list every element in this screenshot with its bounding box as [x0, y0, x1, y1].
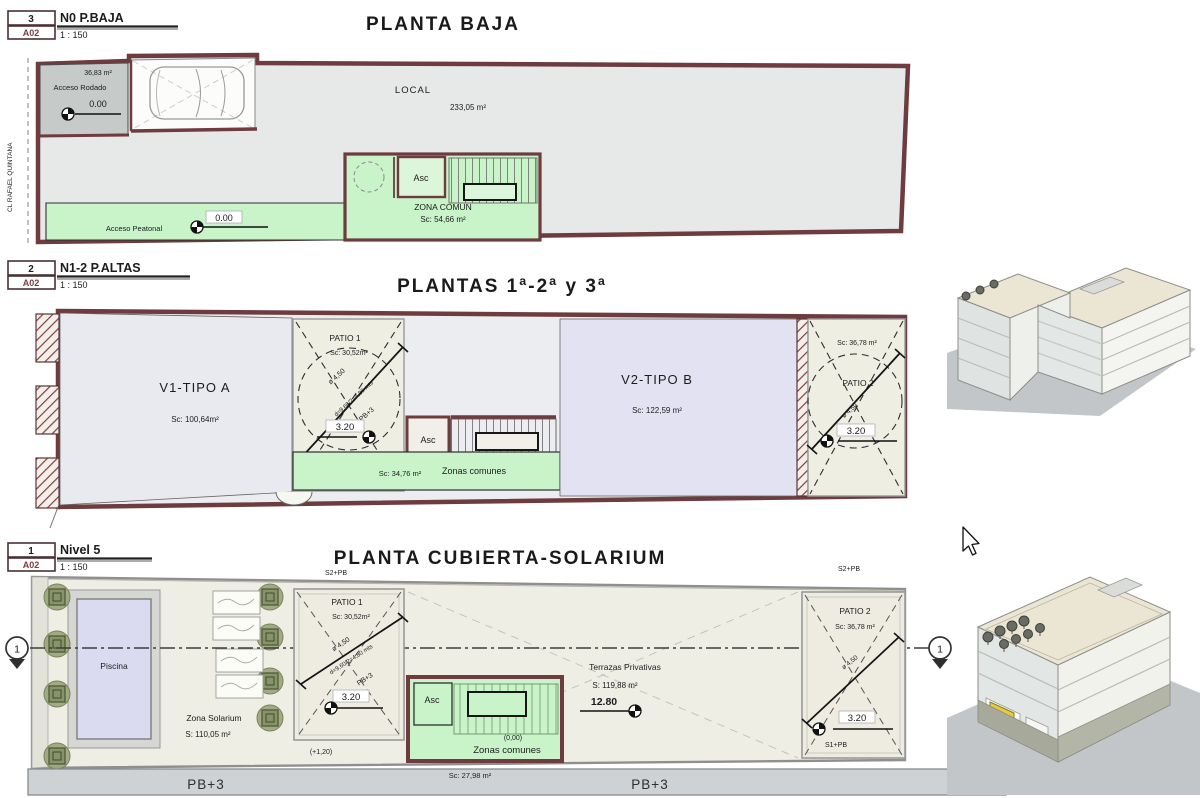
- patio1-label: PATIO 1: [331, 597, 363, 607]
- terrazas-label: Terrazas Privativas: [589, 662, 661, 672]
- block-scale: 1 : 150: [60, 280, 88, 290]
- drawing-canvas: 3 A02 N0 P.BAJA 1 : 150 PLANTA BAJA 2 A0…: [0, 0, 1200, 798]
- street-label: CL RAFAEL QUINTANA: [7, 142, 14, 212]
- zona-solarium-area: S: 110,05 m²: [185, 730, 231, 739]
- v2-area: Sc: 122,59 m²: [632, 406, 682, 415]
- block-sheet: A02: [23, 28, 40, 38]
- pb3-street-label: PB+3: [631, 777, 668, 792]
- s2pb-label: S2+PB: [325, 570, 347, 577]
- level-benchmark: [821, 435, 833, 447]
- block-scale: 1 : 150: [60, 562, 88, 572]
- level-mark-text: 12.80: [591, 696, 617, 708]
- patio2-area: Sc: 36,78 m²: [835, 624, 875, 631]
- block-sheet: A02: [23, 278, 40, 288]
- block-sheet: A02: [23, 560, 40, 570]
- level-mark-text: 3.20: [336, 422, 355, 433]
- v2-label: V2-TIPO B: [621, 372, 693, 387]
- zona-solarium-label: Zona Solarium: [186, 713, 241, 723]
- zonas-comunes-label: Zonas comunes: [442, 466, 507, 476]
- plan-planta-baja: CL RAFAEL QUINTANA Asc ZONA COMUN Sc: 54…: [7, 55, 908, 246]
- street-band: [28, 769, 1006, 795]
- zonas-comunes-area: Sc: 34,76 m²: [379, 469, 422, 478]
- patio2-label: PATIO 2: [839, 606, 871, 616]
- level-benchmark: [62, 108, 74, 120]
- patio2-label: PATIO 2: [842, 378, 874, 388]
- patio1-area: Sc: 30,52m²: [332, 614, 370, 621]
- axonometric-view-top: [947, 268, 1196, 416]
- zonas-comunes-strip: [293, 452, 560, 490]
- party-wall: [36, 386, 59, 434]
- elevator-label: Asc: [413, 173, 429, 183]
- patio1-area: Sc: 30,52m²: [330, 350, 368, 357]
- architectural-sheet: 3 A02 N0 P.BAJA 1 : 150 PLANTA BAJA 2 A0…: [0, 0, 1200, 798]
- acceso-rodado-area-label: 36,83 m²: [84, 70, 112, 77]
- dwelling-v1: [60, 313, 292, 505]
- s1pb-label: S1+PB: [825, 742, 847, 749]
- level-mark-text: 3.20: [848, 713, 867, 724]
- party-wall: [36, 314, 59, 362]
- plan-plantas-altas: V1-TIPO A Sc: 100,64m² PATIO 1 Sc: 30,52…: [36, 311, 905, 528]
- block-number: 1: [28, 546, 34, 557]
- mouse-cursor: [963, 527, 979, 555]
- plan-cubierta-solarium: Piscina PATIO 1 Sc: 30,52m² ø 4,50 d: [6, 566, 1006, 795]
- elevator-label: Asc: [424, 695, 440, 705]
- zonas-comunes-level: (0,00): [504, 735, 522, 742]
- block-name: N1-2 P.ALTAS: [60, 261, 141, 275]
- level-benchmark: [363, 431, 375, 443]
- v1-label: V1-TIPO A: [159, 380, 230, 395]
- section-number: 1: [14, 644, 20, 656]
- patio2-area: Sc: 36,78 m²: [837, 340, 877, 347]
- local-label: LOCAL: [395, 85, 431, 96]
- axonometric-view-bottom: [947, 577, 1200, 795]
- block-number: 2: [28, 264, 34, 275]
- s2pb-label: S2+PB: [838, 566, 860, 573]
- plan-title-altas: PLANTAS 1ª-2ª y 3ª: [397, 276, 607, 297]
- acceso-rodado-label: Acceso Rodado: [54, 83, 107, 92]
- patio1-label: PATIO 1: [329, 333, 361, 343]
- section-marker-right: 1: [929, 637, 951, 669]
- level-benchmark: [191, 221, 203, 233]
- acceso-peatonal-label: Acceso Peatonal: [106, 224, 163, 233]
- zona-comun-area: Sc: 54,66 m²: [420, 215, 466, 224]
- pool-label: Piscina: [100, 661, 128, 671]
- section-marker-left: 1: [6, 637, 28, 669]
- title-block-1: 1 A02 Nivel 5 1 : 150: [8, 543, 152, 572]
- local-area: 233,05 m²: [450, 103, 486, 112]
- plan-title-cubierta: PLANTA CUBIERTA-SOLARIUM: [334, 548, 667, 569]
- block-name: N0 P.BAJA: [60, 11, 124, 25]
- block-scale: 1 : 150: [60, 30, 88, 40]
- level-mark-text: 3.20: [342, 692, 361, 703]
- zonas-comunes-label: Zonas comunes: [473, 745, 541, 756]
- title-block-2: 2 A02 N1-2 P.ALTAS 1 : 150: [8, 261, 190, 290]
- block-number: 3: [28, 14, 34, 25]
- zona-comun-label: ZONA COMUN: [414, 202, 472, 212]
- title-block-3: 3 A02 N0 P.BAJA 1 : 150: [8, 11, 178, 40]
- elevator-label: Asc: [420, 435, 436, 445]
- pb3-street-label: PB+3: [187, 777, 224, 792]
- zonas-comunes-area: Sc: 27,98 m²: [449, 771, 492, 780]
- v1-area: Sc: 100,64m²: [171, 415, 219, 424]
- level-benchmark: [813, 723, 825, 735]
- level-benchmark: [629, 705, 641, 717]
- section-number: 1: [937, 644, 943, 656]
- level-benchmark: [325, 702, 337, 714]
- level-mark-text: 0.00: [89, 99, 107, 109]
- plan-title-baja: PLANTA BAJA: [366, 14, 520, 35]
- block-name: Nivel 5: [60, 543, 100, 557]
- level-mark-text: 0.00: [215, 213, 233, 223]
- plus-120-label: (+1,20): [310, 749, 332, 756]
- level-mark-text: 3.20: [847, 426, 866, 437]
- party-wall: [797, 319, 808, 496]
- party-wall: [36, 458, 59, 508]
- terrazas-area: S: 119,88 m²: [592, 681, 638, 690]
